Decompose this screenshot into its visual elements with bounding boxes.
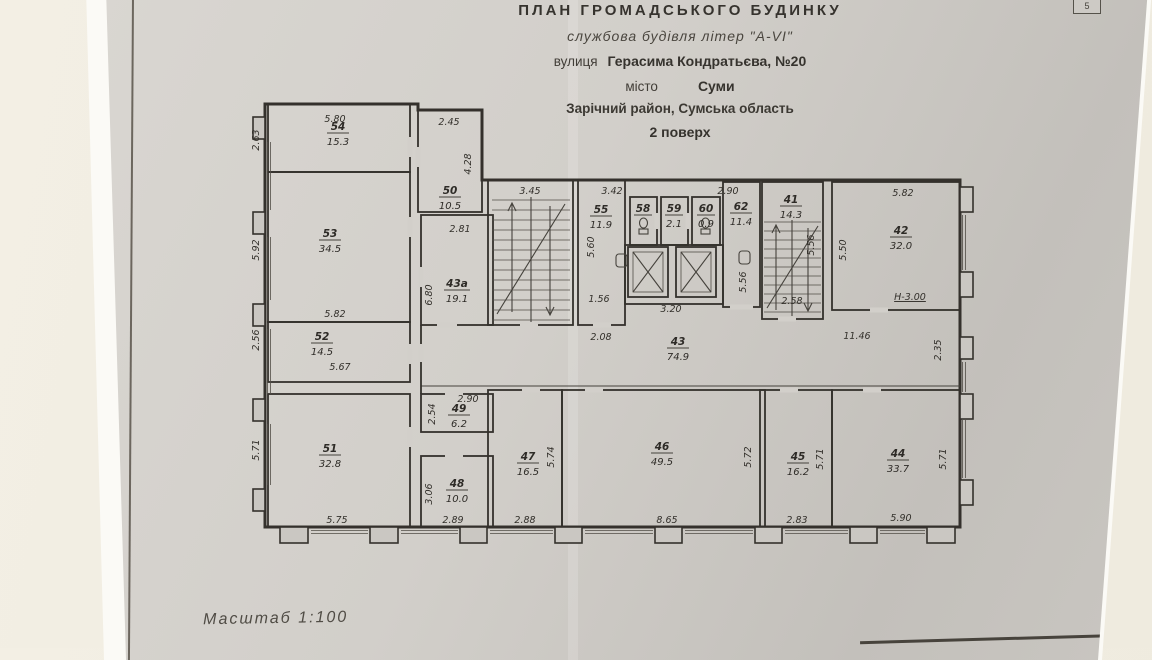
- wc-fixture-icon: [639, 218, 648, 234]
- dim-label: 2.89: [442, 515, 463, 526]
- room-45-number: 45: [790, 451, 806, 463]
- room-51: 51 32.8: [319, 443, 341, 470]
- room-60: 60 0.9: [697, 203, 715, 230]
- room-48: 48 10.0: [446, 478, 468, 505]
- room-41-number: 41: [783, 194, 799, 206]
- dim-label: 4.28: [463, 153, 474, 174]
- dim-label: 5.90: [890, 513, 911, 524]
- room-62-area: 11.4: [730, 217, 752, 228]
- room-walls: [268, 104, 960, 527]
- room-54-area: 15.3: [327, 137, 349, 148]
- dim-label: 3.06: [424, 483, 435, 504]
- room-45: 45 16.2: [787, 451, 809, 478]
- dim-label: 2.90: [457, 394, 478, 405]
- room-43-number: 43: [670, 336, 686, 348]
- room-55: 55 11.9: [590, 204, 612, 231]
- room-55-area: 11.9: [590, 220, 612, 231]
- street-value: Герасима Кондратьєва, №20: [608, 53, 807, 69]
- room-60-area: 0.9: [698, 219, 714, 230]
- room-50: 50 10.5: [439, 185, 461, 212]
- room-53: 53 34.5: [319, 228, 341, 255]
- building-outline: [265, 104, 960, 527]
- building-subtitle: службова будівля літер "А-VI": [460, 28, 900, 44]
- room-49: 49 6.2: [448, 403, 470, 430]
- room-58: 58: [634, 203, 652, 215]
- dim-label: 6.80: [424, 284, 435, 305]
- dim-label: 3.42: [601, 186, 622, 197]
- room-52: 52 14.5: [311, 331, 333, 358]
- dim-label: 5.56: [738, 271, 749, 292]
- scanned-plan-page: 5 ПЛАН ГРОМАДСЬКОГО БУДИНКУ службова буд…: [100, 0, 1152, 660]
- room-44-area: 33.7: [887, 464, 910, 475]
- dimension-labels: 5.80 2.63 2.45 4.28 5.92 5.82 2.81 6.80 …: [251, 114, 949, 526]
- dim-label: 5.56: [806, 234, 817, 255]
- room-42-number: 42: [893, 225, 909, 237]
- dim-label: 5.71: [815, 448, 826, 469]
- room-62-number: 62: [734, 201, 749, 213]
- dim-label: 11.46: [843, 331, 870, 342]
- dim-label: 2.54: [427, 403, 438, 424]
- room-52-number: 52: [315, 331, 330, 343]
- room-45-area: 16.2: [787, 467, 809, 478]
- room-62: 62 11.4: [730, 201, 752, 228]
- dim-label: 5.71: [251, 439, 262, 460]
- dim-label: 1.56: [588, 294, 609, 305]
- page-bottom-edge: [860, 633, 1152, 644]
- room-59: 59 2.1: [665, 203, 683, 230]
- dim-label: 2.08: [590, 332, 611, 343]
- dim-label: 8.65: [656, 515, 677, 526]
- room-46: 46 49.5: [651, 441, 673, 468]
- room-43-area: 74.9: [667, 352, 689, 363]
- dim-label: 2.63: [251, 129, 262, 150]
- room-42-area: 32.0: [890, 241, 912, 252]
- floor-plan-drawing: 54 15.3 50 10.5 53 34.5 43а 19.1 52: [225, 82, 985, 567]
- room-52-area: 14.5: [311, 347, 333, 358]
- room-47: 47 16.5: [517, 451, 539, 478]
- door-symbol: [616, 251, 750, 267]
- room-42: 42 32.0: [890, 225, 912, 252]
- dim-label: 2.35: [933, 339, 944, 360]
- dim-label: 2.90: [717, 186, 738, 197]
- room-41-area: 14.3: [780, 210, 802, 221]
- room-53-area: 34.5: [319, 244, 341, 255]
- dim-label: 3.45: [519, 186, 540, 197]
- room-48-number: 48: [449, 478, 465, 490]
- room-47-number: 47: [520, 451, 536, 463]
- sheet-number: 5: [1084, 1, 1089, 11]
- plan-title: ПЛАН ГРОМАДСЬКОГО БУДИНКУ: [460, 2, 900, 19]
- dim-label: 5.71: [938, 448, 949, 469]
- dim-label: 5.82: [892, 188, 913, 199]
- dim-label: 5.82: [324, 309, 345, 320]
- dim-label: 2.45: [438, 117, 459, 128]
- dim-label: 2.88: [514, 515, 535, 526]
- dim-label: 5.67: [329, 362, 350, 373]
- dim-label: 2.58: [781, 296, 802, 307]
- room-43a-area: 19.1: [446, 294, 468, 305]
- room-47-area: 16.5: [517, 467, 539, 478]
- room-53-number: 53: [323, 228, 338, 240]
- dim-label: 2.83: [786, 515, 807, 526]
- room-49-area: 6.2: [451, 419, 467, 430]
- page-fold-line: [128, 0, 134, 660]
- dim-label: 5.80: [324, 114, 345, 125]
- room-59-number: 59: [667, 203, 682, 215]
- street-prefix: вулиця: [554, 54, 598, 69]
- height-mark-label: Н-3.00: [894, 292, 926, 303]
- dim-label: 5.50: [838, 239, 849, 260]
- dim-label: 5.75: [326, 515, 347, 526]
- dim-label: 5.74: [546, 446, 557, 467]
- street-row: вулиця Герасима Кондратьєва, №20: [460, 53, 900, 69]
- room-60-number: 60: [699, 203, 714, 215]
- elevator-shaft-left-icon: [628, 247, 668, 297]
- room-46-number: 46: [654, 441, 670, 453]
- room-51-area: 32.8: [319, 459, 341, 470]
- dim-label: 5.92: [251, 239, 262, 260]
- dim-label: 3.20: [660, 304, 681, 315]
- room-55-number: 55: [594, 204, 609, 216]
- room-46-area: 49.5: [651, 457, 673, 468]
- room-54: 54 15.3: [327, 121, 349, 148]
- room-44-number: 44: [890, 448, 906, 460]
- room-59-area: 2.1: [666, 219, 682, 230]
- room-50-number: 50: [443, 185, 458, 197]
- sheet-number-box: 5: [1073, 0, 1101, 14]
- dim-label: 2.56: [251, 329, 262, 350]
- dim-label: 5.60: [586, 236, 597, 257]
- elevator-shaft-right-icon: [676, 247, 716, 297]
- room-43a: 43а 19.1: [444, 278, 470, 305]
- room-48-area: 10.0: [446, 494, 468, 505]
- room-44: 44 33.7: [887, 448, 910, 475]
- dim-label: 5.72: [743, 446, 754, 467]
- room-43-corridor: 43 74.9: [667, 336, 689, 363]
- room-41: 41 14.3: [780, 194, 802, 221]
- dim-label: 2.81: [449, 224, 470, 235]
- photo-of-floor-plan: { "sheet": { "number": "5", "scale_label…: [0, 0, 1152, 648]
- staircase-left-icon: [492, 197, 570, 322]
- scale-label: Масштаб 1:100: [203, 609, 349, 630]
- room-58-number: 58: [636, 203, 651, 215]
- room-50-area: 10.5: [439, 201, 461, 212]
- room-43a-number: 43а: [445, 278, 468, 290]
- room-51-number: 51: [323, 443, 338, 455]
